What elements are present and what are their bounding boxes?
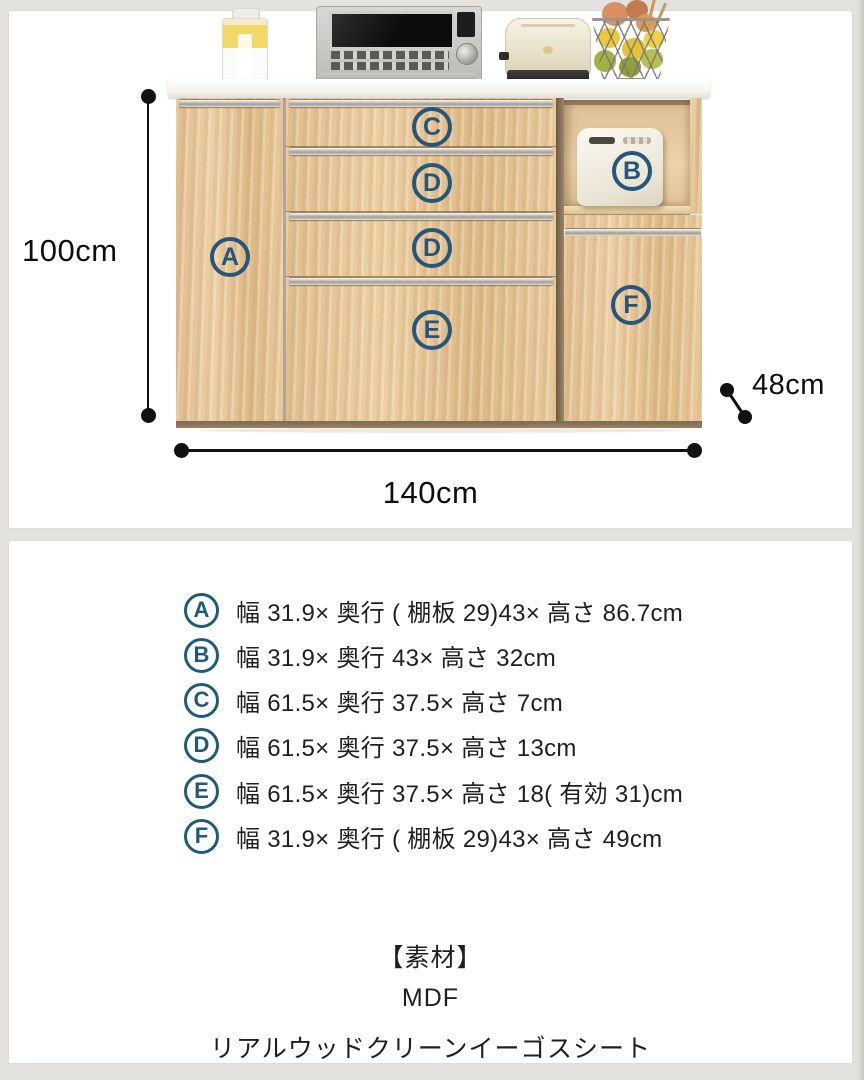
spec-text-a: 幅 31.9× 奥行 ( 棚板 29)43× 高さ 86.7cm bbox=[236, 593, 683, 628]
toaster-slot bbox=[521, 24, 575, 27]
material-line-sheet: リアルウッドクリーンイーゴスシート bbox=[8, 1029, 853, 1065]
part-badge-b: B bbox=[612, 151, 652, 191]
screen-edge-shading bbox=[857, 0, 864, 1080]
spec-text-f: 幅 31.9× 奥行 ( 棚板 29)43× 高さ 49cm bbox=[236, 819, 662, 854]
part-badge-a: A bbox=[210, 237, 250, 277]
toaster-logo bbox=[543, 46, 553, 54]
cabinet-shadow bbox=[200, 428, 680, 433]
toaster-lever bbox=[499, 52, 509, 60]
height-dimension-line bbox=[147, 96, 149, 415]
door-handle bbox=[565, 229, 701, 236]
part-badge-d-lower: D bbox=[412, 228, 452, 268]
part-badge-f: F bbox=[611, 285, 651, 325]
drawer-handle bbox=[289, 100, 553, 107]
spec-row-a: A 幅 31.9× 奥行 ( 棚板 29)43× 高さ 86.7cm bbox=[184, 592, 683, 628]
rice-cooker-vent bbox=[589, 137, 615, 144]
drawer-handle bbox=[289, 213, 553, 220]
dimension-endpoint bbox=[141, 408, 156, 423]
microwave-dial bbox=[456, 43, 478, 65]
cabinet-door-f bbox=[564, 236, 702, 421]
spec-badge-e: E bbox=[184, 774, 219, 809]
spec-text-d: 幅 61.5× 奥行 37.5× 高さ 13cm bbox=[236, 728, 577, 763]
spec-badge-d: D bbox=[184, 728, 219, 763]
cabinet-side-frame bbox=[690, 98, 702, 214]
width-dimension-label: 140cm bbox=[8, 475, 853, 511]
juice-bottle-image bbox=[222, 8, 268, 86]
drawer-e bbox=[286, 276, 556, 422]
spec-row-e: E 幅 61.5× 奥行 37.5× 高さ 18( 有効 31)cm bbox=[184, 773, 683, 809]
part-badge-c: C bbox=[412, 107, 452, 147]
bottle-label bbox=[238, 34, 252, 78]
microwave-buttons bbox=[331, 62, 449, 70]
part-badge-e: E bbox=[412, 310, 452, 350]
door-handle bbox=[179, 100, 280, 107]
height-dimension-label: 100cm bbox=[22, 233, 118, 269]
spec-badge-a: A bbox=[184, 593, 219, 628]
spec-text-e: 幅 61.5× 奥行 37.5× 高さ 18( 有効 31)cm bbox=[236, 774, 683, 809]
material-heading: 【素材】 bbox=[8, 938, 853, 974]
microwave-door bbox=[329, 11, 455, 50]
cabinet-base bbox=[176, 421, 702, 428]
spec-badge-c: C bbox=[184, 683, 219, 718]
countertop bbox=[168, 79, 710, 98]
microwave-image bbox=[316, 6, 482, 88]
dimension-endpoint bbox=[174, 443, 189, 458]
part-badge-d-upper: D bbox=[412, 163, 452, 203]
drawer-handle bbox=[289, 278, 553, 285]
material-line-mdf: MDF bbox=[8, 984, 853, 1013]
spec-badge-b: B bbox=[184, 638, 219, 673]
spec-text-c: 幅 61.5× 奥行 37.5× 高さ 7cm bbox=[236, 683, 563, 718]
width-dimension-line bbox=[181, 449, 694, 452]
microwave-display bbox=[457, 12, 475, 37]
microwave-buttons bbox=[331, 51, 449, 59]
fruit-basket-image bbox=[592, 0, 670, 86]
rice-cooker-buttons bbox=[623, 137, 651, 144]
shelf-edge bbox=[564, 206, 690, 215]
dimension-endpoint bbox=[141, 89, 156, 104]
spec-row-d: D 幅 61.5× 奥行 37.5× 高さ 13cm bbox=[184, 727, 577, 763]
spec-row-c: C 幅 61.5× 奥行 37.5× 高さ 7cm bbox=[184, 682, 563, 718]
spec-row-b: B 幅 31.9× 奥行 43× 高さ 32cm bbox=[184, 637, 556, 673]
basket-wires bbox=[592, 18, 670, 83]
cabinet-divider bbox=[556, 98, 564, 421]
depth-dimension-label: 48cm bbox=[752, 369, 825, 402]
spec-text-b: 幅 31.9× 奥行 43× 高さ 32cm bbox=[236, 638, 556, 673]
spec-row-f: F 幅 31.9× 奥行 ( 棚板 29)43× 高さ 49cm bbox=[184, 818, 662, 854]
toaster-image bbox=[505, 18, 591, 82]
dimension-endpoint bbox=[687, 443, 702, 458]
drawer-handle bbox=[289, 148, 553, 155]
spec-badge-f: F bbox=[184, 819, 219, 854]
front-rail bbox=[564, 215, 702, 229]
